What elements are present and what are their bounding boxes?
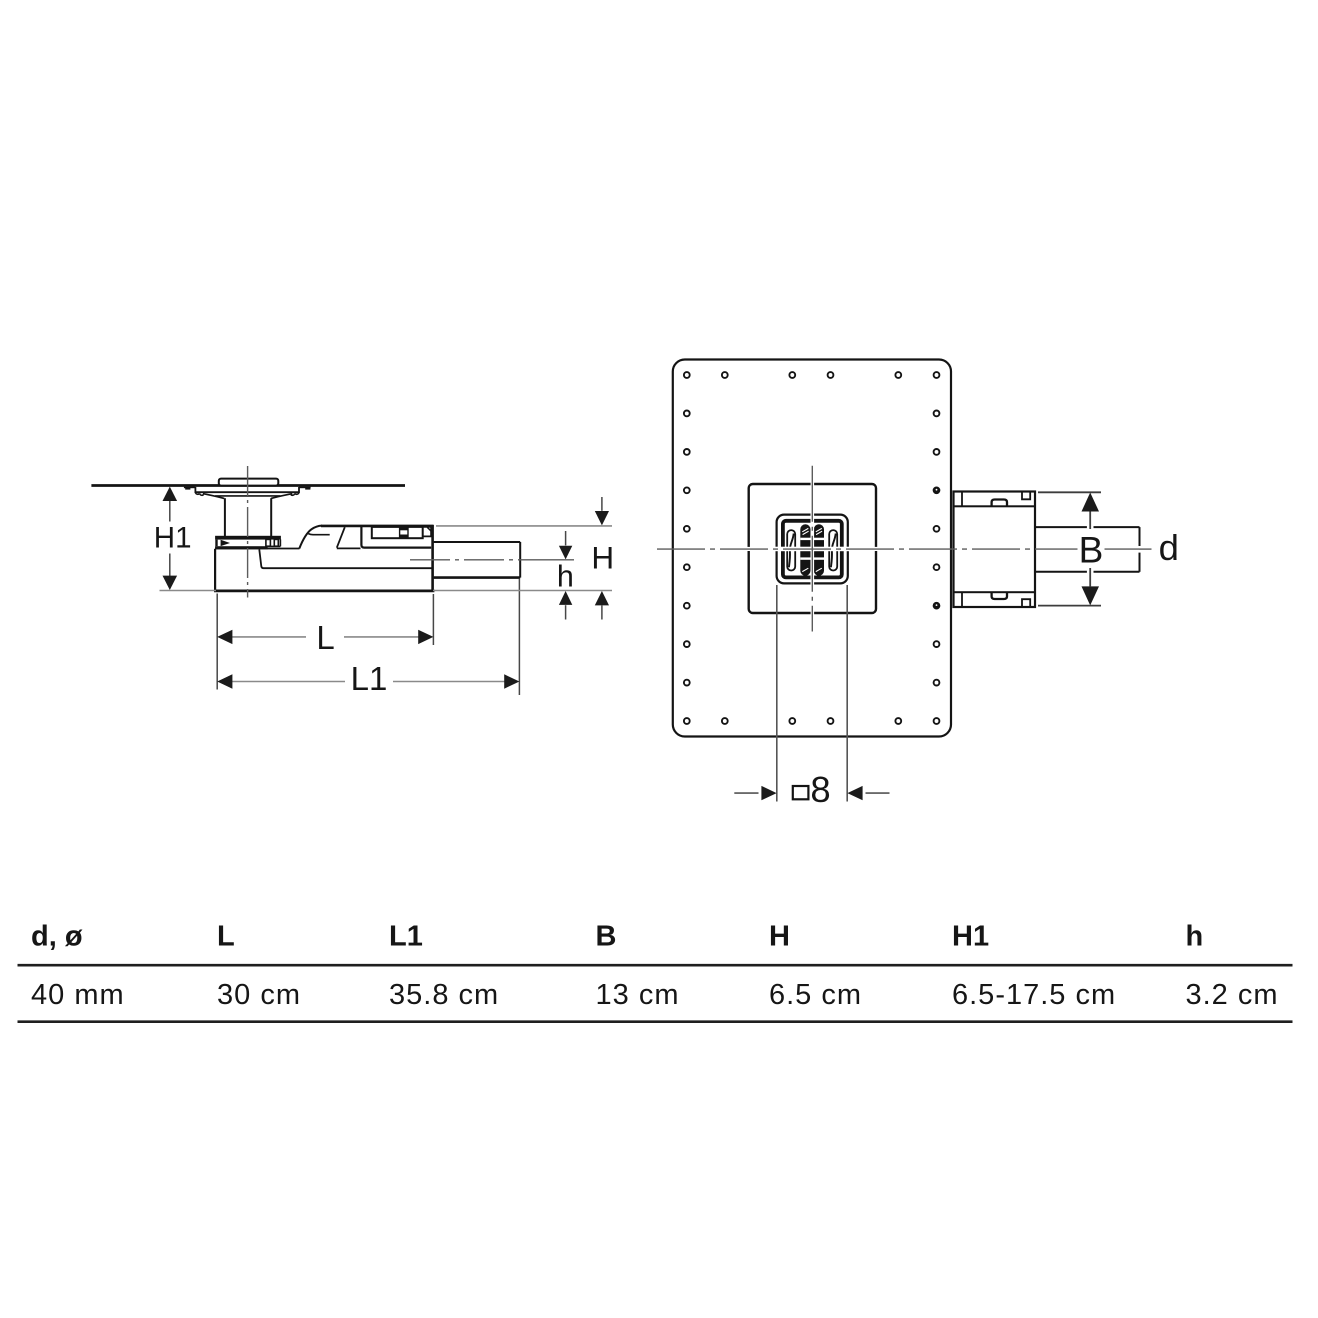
svg-text:13 cm: 13 cm [596, 979, 680, 1011]
svg-text:L1: L1 [389, 921, 423, 953]
svg-text:L: L [217, 921, 235, 953]
svg-text:h: h [557, 559, 574, 593]
svg-text:h: h [1186, 921, 1204, 953]
svg-text:d, ø: d, ø [31, 921, 83, 953]
svg-text:B: B [596, 921, 617, 953]
svg-text:35.8 cm: 35.8 cm [389, 979, 499, 1011]
svg-text:40 mm: 40 mm [31, 979, 125, 1011]
svg-text:3.2 cm: 3.2 cm [1186, 979, 1279, 1011]
svg-text:B: B [1079, 530, 1104, 571]
svg-text:8: 8 [810, 769, 830, 810]
svg-text:H: H [769, 921, 790, 953]
svg-text:6.5 cm: 6.5 cm [769, 979, 862, 1011]
svg-text:6.5-17.5 cm: 6.5-17.5 cm [952, 979, 1116, 1011]
svg-text:L1: L1 [351, 660, 388, 697]
svg-text:30 cm: 30 cm [217, 979, 301, 1011]
svg-text:H1: H1 [952, 921, 989, 953]
svg-text:d: d [1159, 527, 1179, 568]
svg-text:L: L [316, 619, 334, 656]
svg-text:H1: H1 [154, 522, 192, 555]
svg-text:H: H [591, 539, 614, 575]
